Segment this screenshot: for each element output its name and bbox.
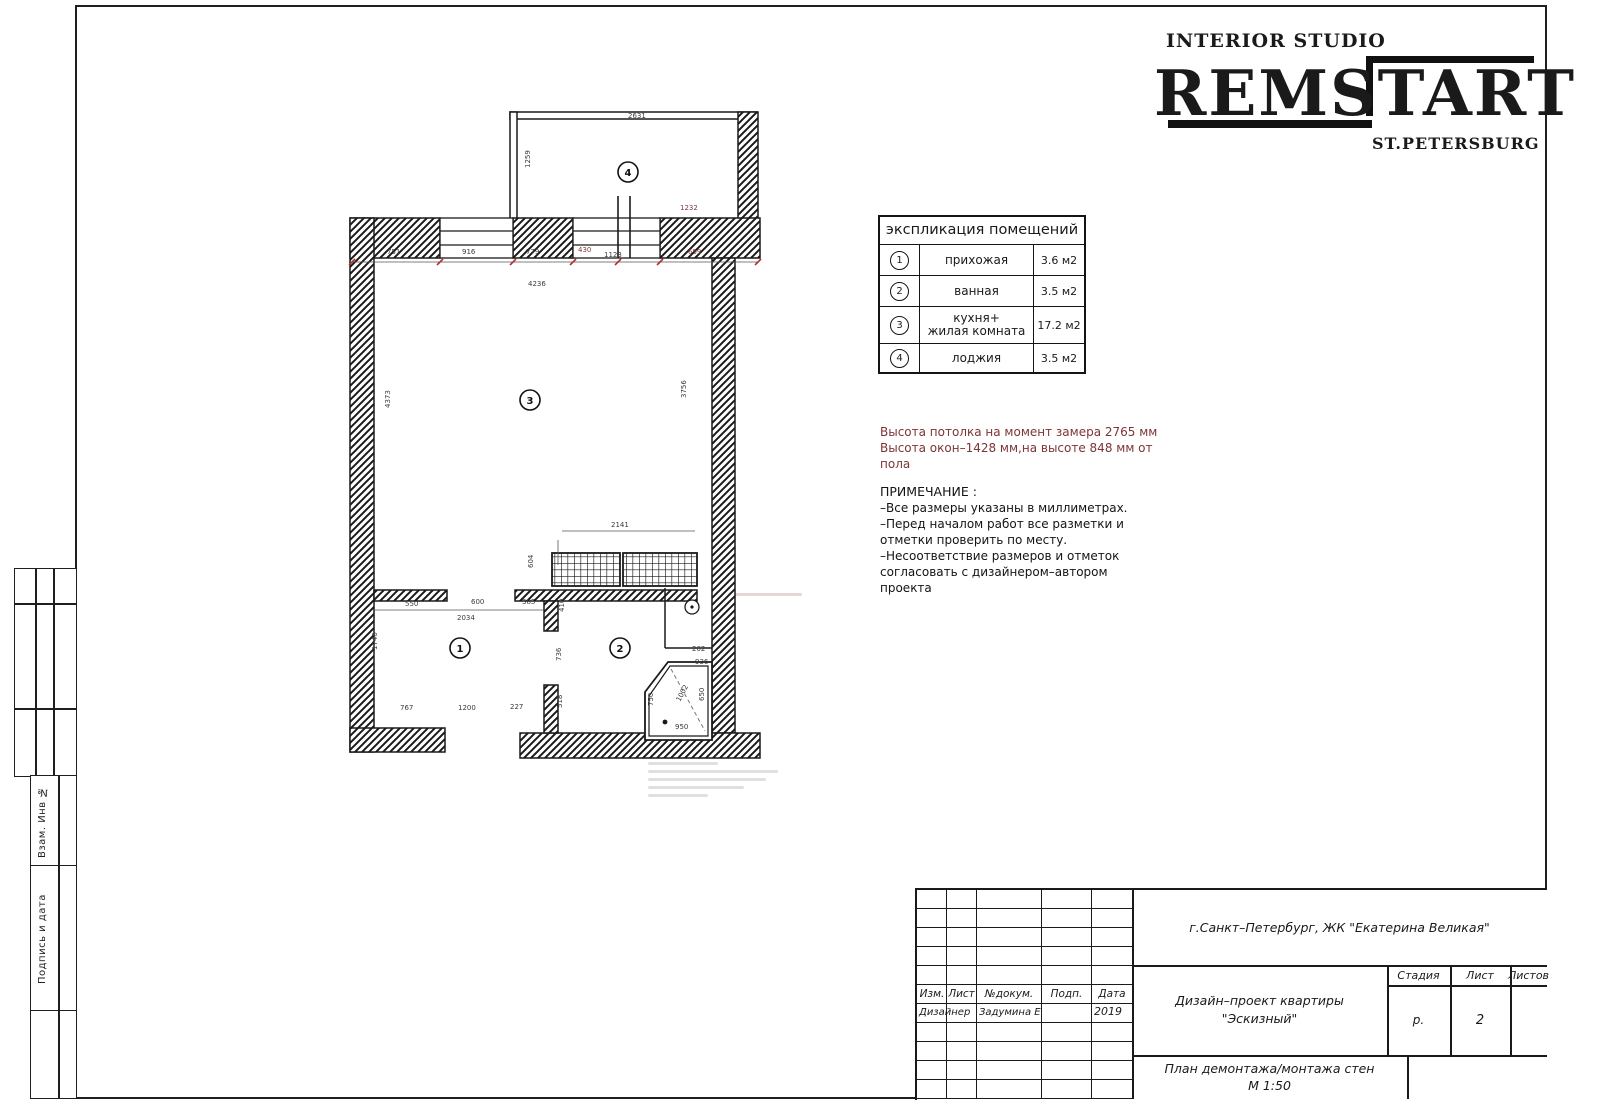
title-block: Изм. Лист №докум. Подп. Дата Дизайнер За… bbox=[915, 888, 1547, 1100]
floor-plan: 751 916 779 430 1123 699 4236 2631 1259 … bbox=[340, 95, 780, 775]
col-izm: Изм. bbox=[918, 988, 946, 1000]
designer-role: Дизайнер bbox=[919, 1007, 970, 1018]
dim-4373: 4373 bbox=[384, 390, 392, 408]
dim-550: 550 bbox=[405, 600, 418, 608]
logo-name: REMSTART bbox=[1154, 56, 1576, 130]
dim-430: 430 bbox=[578, 246, 591, 254]
dim-410: 410 bbox=[558, 599, 566, 612]
dim-2141: 2141 bbox=[611, 521, 629, 529]
project-year: 2019 bbox=[1094, 1005, 1122, 1018]
notes-block: Высота потолка на момент замера 2765 мм … bbox=[880, 424, 1158, 596]
dim-2034: 2034 bbox=[457, 614, 475, 622]
table-row: 4 лоджия 3.5 м2 bbox=[880, 344, 1084, 372]
dim-1123: 1123 bbox=[604, 251, 622, 259]
frame-strip-podpis: Подпись и дата bbox=[30, 865, 77, 1012]
dim-736: 736 bbox=[555, 647, 563, 661]
room-area: 3.5 м2 bbox=[1034, 352, 1084, 365]
project-title: Дизайн–проект квартиры "Эскизный" bbox=[1132, 965, 1387, 1055]
dim-604: 604 bbox=[527, 554, 535, 568]
dim-4236: 4236 bbox=[528, 280, 546, 288]
dim-518: 518 bbox=[556, 695, 564, 708]
col-list: Лист bbox=[947, 988, 976, 1000]
frame-label-vzam: Взам. Инв № bbox=[37, 784, 48, 860]
drawing-sheet: Взам. Инв № Подпись и дата INTERIOR STUD… bbox=[0, 0, 1600, 1108]
sheets-header: Листов bbox=[1510, 965, 1547, 985]
note-item: –Все размеры указаны в миллиметрах. bbox=[880, 500, 1158, 516]
dimension-labels: 751 916 779 430 1123 699 4236 2631 1259 … bbox=[371, 112, 709, 731]
dim-936: 936 bbox=[695, 658, 709, 666]
logo-city: ST.PETERSBURG bbox=[1372, 134, 1540, 153]
room-marker-1: 1 bbox=[457, 644, 464, 655]
dim-1740: 1740 bbox=[371, 632, 379, 650]
frame-strip-vzam: Взам. Инв № bbox=[30, 775, 77, 867]
room-number-badge: 3 bbox=[890, 316, 909, 335]
room-name-line2: жилая комната bbox=[928, 325, 1026, 338]
dim-600: 600 bbox=[471, 598, 484, 606]
note-item: –Перед началом работ все разметки и отме… bbox=[880, 516, 1158, 548]
note-item: –Несоответствие размеров и отметок согла… bbox=[880, 548, 1158, 596]
ceiling-height-note: Высота потолка на момент замера 2765 мм bbox=[880, 424, 1158, 440]
room-marker-4: 4 bbox=[625, 168, 632, 179]
dim-1259: 1259 bbox=[524, 150, 532, 168]
dim-1232: 1232 bbox=[680, 204, 698, 212]
stage-value: р. bbox=[1387, 985, 1450, 1055]
dim-767: 767 bbox=[400, 704, 413, 712]
dim-202: 202 bbox=[692, 645, 705, 653]
room-explication-table: экспликация помещений 1 прихожая 3.6 м2 … bbox=[878, 215, 1086, 374]
dim-227: 227 bbox=[510, 703, 523, 711]
table-row: 2 ванная 3.5 м2 bbox=[880, 276, 1084, 307]
sheet-value: 2 bbox=[1450, 985, 1510, 1055]
col-podp: Подп. bbox=[1042, 988, 1091, 1000]
room-area: 3.5 м2 bbox=[1034, 285, 1084, 298]
frame-strip-top bbox=[14, 568, 77, 777]
notes-title: ПРИМЕЧАНИЕ : bbox=[880, 484, 1158, 500]
dim-2631: 2631 bbox=[628, 112, 646, 120]
table-row: 3 кухня+ жилая комната 17.2 м2 bbox=[880, 307, 1084, 344]
logo-tagline: INTERIOR STUDIO bbox=[1166, 30, 1386, 52]
col-date: Дата bbox=[1092, 988, 1132, 1000]
dim-750: 750 bbox=[647, 693, 655, 706]
room-name: лоджия bbox=[952, 352, 1001, 365]
col-doc: №докум. bbox=[977, 988, 1041, 1000]
dim-699: 699 bbox=[688, 248, 701, 256]
dim-916: 916 bbox=[462, 248, 476, 256]
room-marker-3: 3 bbox=[527, 396, 534, 407]
room-area: 3.6 м2 bbox=[1034, 254, 1084, 267]
dim-3756: 3756 bbox=[680, 380, 688, 398]
frame-strip-bottom bbox=[30, 1010, 77, 1099]
designer-name: Задумина Е bbox=[979, 1007, 1041, 1018]
room-number-badge: 1 bbox=[890, 251, 909, 270]
dim-385: 385 bbox=[522, 598, 535, 606]
object-location: г.Санкт–Петербург, ЖК "Екатерина Великая… bbox=[1132, 890, 1547, 965]
dim-650: 650 bbox=[698, 688, 706, 701]
room-name: прихожая bbox=[945, 254, 1008, 267]
room-name: ванная bbox=[954, 285, 999, 298]
room-number-badge: 2 bbox=[890, 282, 909, 301]
drain-dot bbox=[663, 720, 668, 725]
drawing-title: План демонтажа/монтажа стен М 1:50 bbox=[1132, 1055, 1407, 1099]
new-walls bbox=[552, 553, 697, 586]
dim-1200: 1200 bbox=[458, 704, 476, 712]
dim-779: 779 bbox=[526, 248, 539, 256]
dim-751: 751 bbox=[387, 248, 400, 256]
studio-logo: INTERIOR STUDIO REMSTART ST.PETERSBURG bbox=[1150, 28, 1554, 160]
room-marker-2: 2 bbox=[617, 644, 624, 655]
window-height-note: Высота окон–1428 мм,на высоте 848 мм от … bbox=[880, 440, 1158, 472]
frame-label-podpis: Подпись и дата bbox=[37, 880, 48, 998]
room-number-badge: 4 bbox=[890, 349, 909, 368]
explication-title: экспликация помещений bbox=[880, 217, 1084, 245]
stage-header: Стадия bbox=[1387, 965, 1450, 985]
dim-950: 950 bbox=[675, 723, 688, 731]
room-area: 17.2 м2 bbox=[1034, 319, 1084, 332]
table-row: 1 прихожая 3.6 м2 bbox=[880, 245, 1084, 276]
sheet-header: Лист bbox=[1450, 965, 1510, 985]
